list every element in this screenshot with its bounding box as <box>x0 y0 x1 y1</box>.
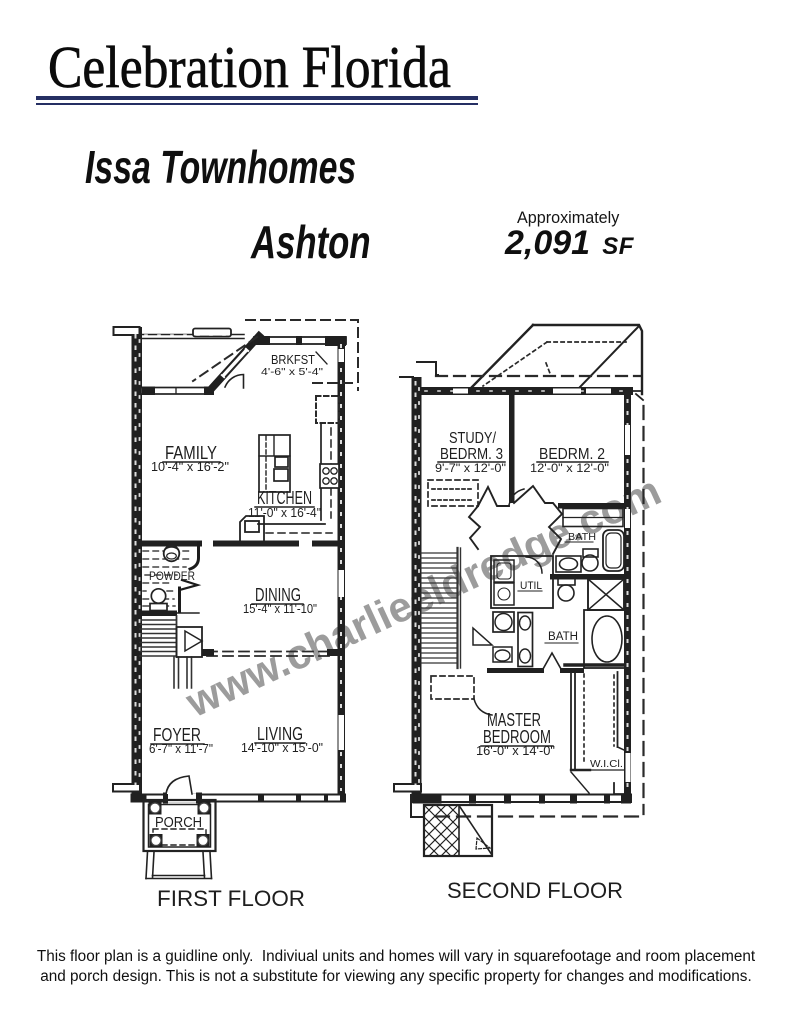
svg-text:11'-0" x 16'-4": 11'-0" x 16'-4" <box>248 506 321 520</box>
svg-text:STUDY/: STUDY/ <box>449 430 496 447</box>
svg-text:W.I.Cl.: W.I.Cl. <box>590 759 623 770</box>
svg-text:10'-4" x 16'-2": 10'-4" x 16'-2" <box>151 460 229 474</box>
svg-text:BRKFST: BRKFST <box>271 352 315 367</box>
svg-text:BATH: BATH <box>568 532 596 543</box>
svg-text:6'-7" x 11'-7": 6'-7" x 11'-7" <box>149 742 213 756</box>
svg-text:KITCHEN: KITCHEN <box>257 488 312 508</box>
svg-text:14'-10" x 15'-0": 14'-10" x 15'-0" <box>241 741 323 755</box>
svg-text:9'-7" x 12'-0": 9'-7" x 12'-0" <box>435 461 506 475</box>
svg-text:PORCH: PORCH <box>155 814 202 831</box>
svg-text:4'-6" x 5'-4": 4'-6" x 5'-4" <box>261 366 323 378</box>
svg-text:16'-0" x 14'-0": 16'-0" x 14'-0" <box>476 744 555 758</box>
svg-text:FIRST FLOOR: FIRST FLOOR <box>157 886 305 911</box>
svg-text:SECOND FLOOR: SECOND FLOOR <box>447 878 623 903</box>
svg-text:UTIL: UTIL <box>520 580 542 592</box>
svg-text:12'-0" x 12'-0": 12'-0" x 12'-0" <box>530 461 609 475</box>
svg-text:POWDER: POWDER <box>149 571 195 583</box>
svg-text:15'-4" x 11'-10": 15'-4" x 11'-10" <box>243 602 317 616</box>
svg-text:BATH: BATH <box>548 631 578 643</box>
